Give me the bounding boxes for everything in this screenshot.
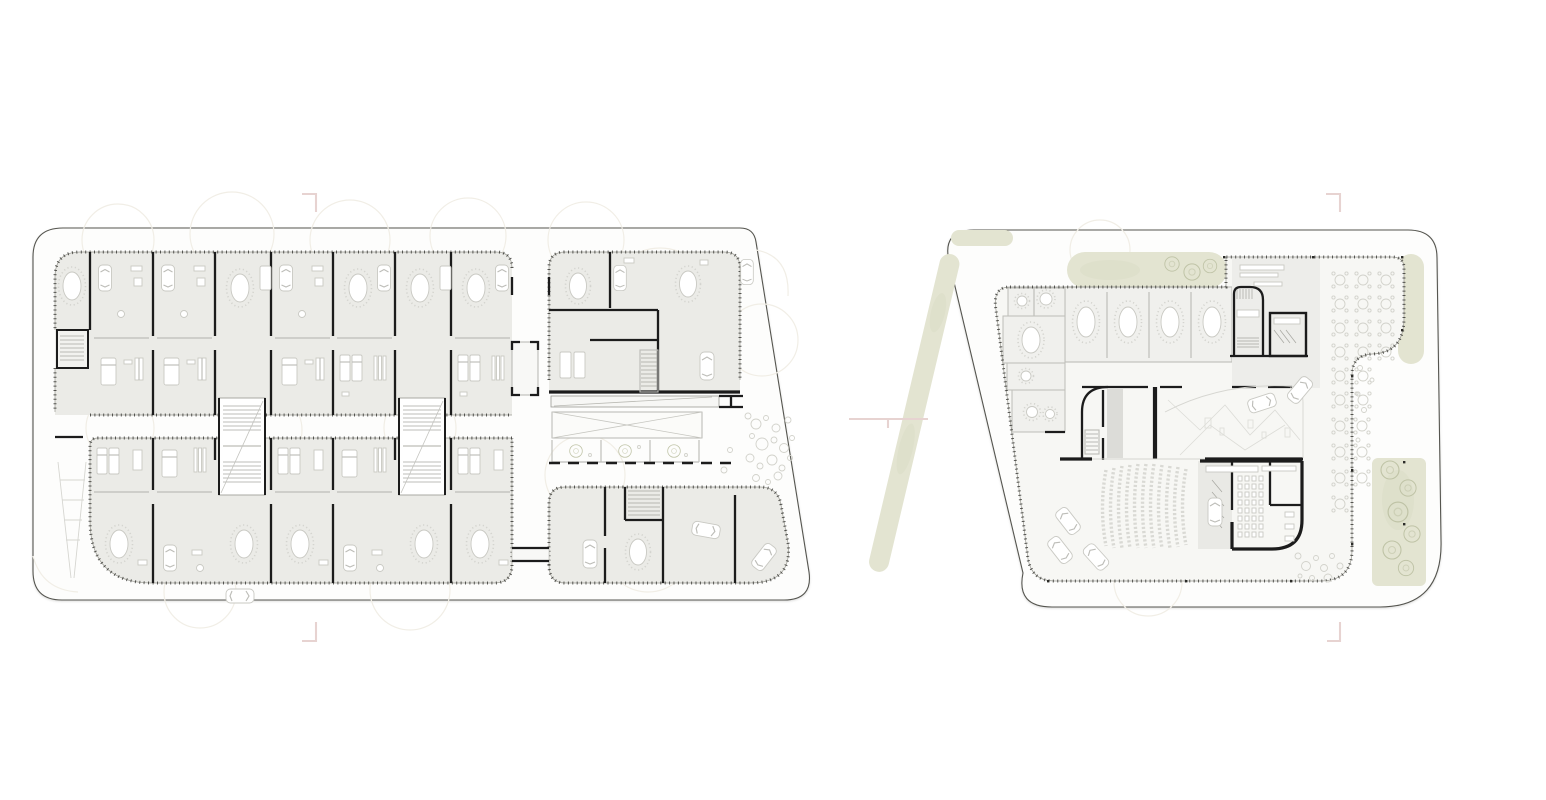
street-car [226,589,254,603]
entry-lobby [551,396,743,407]
top-right-core [1230,258,1320,388]
central-ramp [552,412,702,438]
left-floor-plan [33,192,809,630]
connector-bridge-lower [512,548,549,561]
section-marker-bottom-left [302,622,316,641]
lower-right-cluster [549,487,789,583]
green-strip-left-edge [867,252,961,574]
section-marker-top-left [302,194,316,212]
drawing-canvas [0,0,1546,800]
elevator-shaft [1107,389,1123,458]
section-marker-bottom-right [1327,622,1340,641]
left-edge-rooms [1003,288,1065,432]
stair-core [219,398,265,495]
section-marker-top-right [1326,194,1340,212]
stair-core [399,398,445,495]
green-strip-top-left [951,230,1013,246]
street-car [741,259,754,284]
right-floor-plan [867,220,1441,616]
floor-plan-drawing [0,0,1546,800]
meeting-rooms-row [1065,287,1232,362]
